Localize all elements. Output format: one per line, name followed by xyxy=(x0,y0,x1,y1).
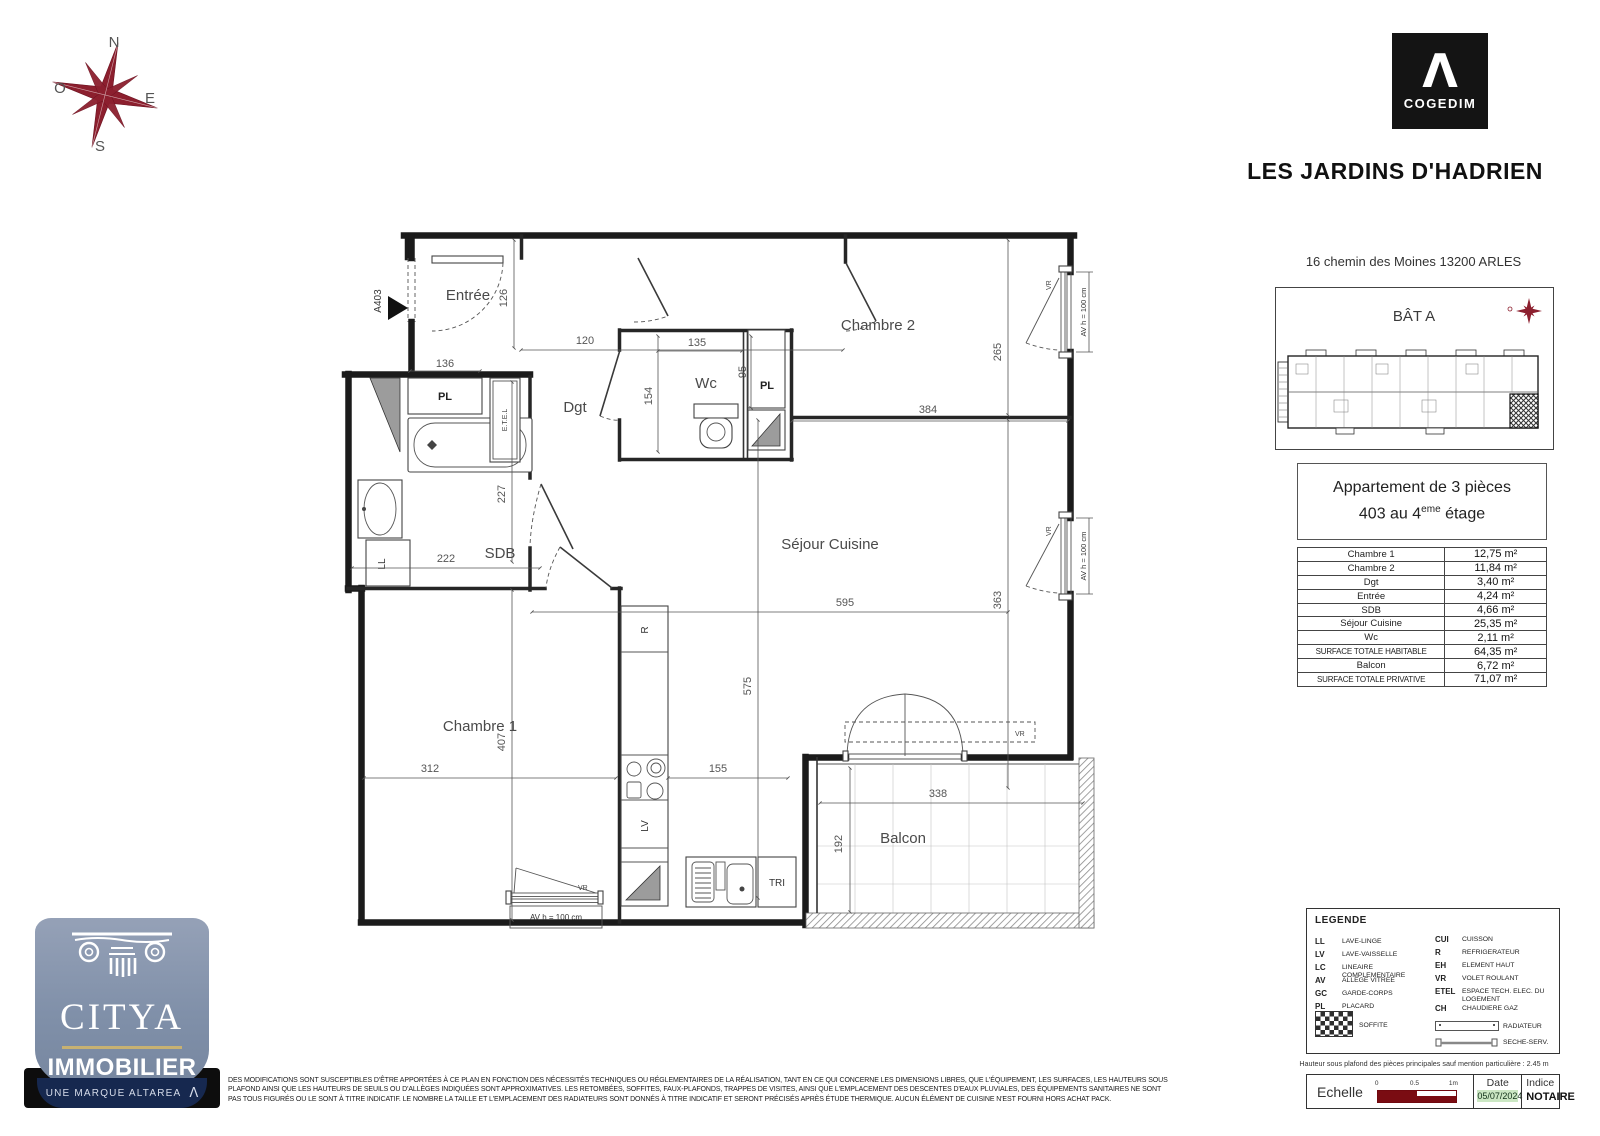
unit-ref-label: A403 xyxy=(373,289,384,313)
table-row: Entrée4,24 m² xyxy=(1298,590,1546,604)
closet-label: PL xyxy=(760,380,774,392)
table-row: Chambre 211,84 m² xyxy=(1298,562,1546,576)
window-height-note: AV h = 100 cm xyxy=(1079,288,1088,337)
compass-east-label: E xyxy=(145,90,155,107)
date-cell: Date 05/07/2024 xyxy=(1473,1075,1521,1108)
table-row: Séjour Cuisine25,35 m² xyxy=(1298,617,1546,631)
svg-text:575: 575 xyxy=(742,677,754,695)
legend-box: LEGENDE LLLAVE-LINGE LVLAVE-VAISSELLE LC… xyxy=(1306,908,1560,1054)
table-row-total-privative: SURFACE TOTALE PRIVATIVE71,07 m² xyxy=(1298,673,1546,687)
building-key-plan-drawing: BÂT A xyxy=(1276,288,1553,449)
column-capital-icon xyxy=(67,928,177,978)
apartment-floor: 403 au 4eme étage xyxy=(1359,499,1485,525)
vr-label: VR xyxy=(578,885,588,892)
svg-text:155: 155 xyxy=(709,763,727,775)
svg-text:338: 338 xyxy=(929,788,947,800)
room-label-wc: Wc xyxy=(695,375,717,392)
wc-door xyxy=(600,350,620,420)
svg-text:265: 265 xyxy=(992,343,1004,361)
room-label-balcon: Balcon xyxy=(880,830,926,847)
cogedim-lambda-icon: Λ xyxy=(1422,51,1458,92)
interior-walls xyxy=(348,236,1070,922)
table-row: Wc2,11 m² xyxy=(1298,631,1546,645)
building-label: BÂT A xyxy=(1393,308,1435,325)
ceiling-height-note: Hauteur sous plafond des pièces principa… xyxy=(1288,1059,1560,1068)
dishwasher-label: LV xyxy=(640,820,651,832)
balcony-guardrail xyxy=(806,913,1094,928)
compass-north-label: N xyxy=(109,34,120,51)
table-row: Dgt3,40 m² xyxy=(1298,576,1546,590)
washing-machine xyxy=(366,540,410,586)
towel-dryer-label: SECHE-SERV. xyxy=(1503,1038,1595,1047)
svg-text:154: 154 xyxy=(643,387,655,405)
soffite-symbol xyxy=(1315,1011,1353,1037)
cogedim-logo: Λ COGEDIM xyxy=(1392,33,1488,129)
room-label-dgt: Dgt xyxy=(563,399,587,416)
svg-text:95: 95 xyxy=(737,366,749,378)
room-label-entree: Entrée xyxy=(446,287,490,304)
table-row: Chambre 112,75 m² xyxy=(1298,548,1546,562)
svg-text:227: 227 xyxy=(496,485,508,503)
room-label-sdb: SDB xyxy=(485,545,516,562)
citya-shield: CITYA IMMOBILIER xyxy=(35,918,209,1092)
apartment-type: Appartement de 3 pièces xyxy=(1333,477,1511,499)
closet-wc xyxy=(748,330,785,408)
svg-text:595: 595 xyxy=(836,597,854,609)
balcony-guardrail xyxy=(1079,758,1094,928)
tri-label: TRI xyxy=(769,878,785,889)
sejour-window: VR AV h = 100 cm xyxy=(1026,512,1093,600)
citya-gold-rule xyxy=(62,1046,182,1049)
kitchen-fixtures: R LV TRI xyxy=(621,606,796,907)
table-row: Balcon6,72 m² xyxy=(1298,659,1546,673)
index-cell: Indice NOTAIRE xyxy=(1521,1075,1559,1108)
room-labels: Entrée Chambre 2 Wc Dgt SDB Séjour Cuisi… xyxy=(438,287,926,847)
building-key-plan: BÂT A xyxy=(1275,287,1554,450)
radiator-label: RADIATEUR xyxy=(1503,1022,1595,1031)
tap-icon xyxy=(740,887,745,892)
altarea-lambda-icon: Λ xyxy=(189,1086,198,1101)
highlighted-unit xyxy=(1510,394,1538,428)
compass-south-label: S xyxy=(95,138,105,155)
building-footprint xyxy=(1278,350,1538,434)
window-height-note: AV h = 100 cm xyxy=(530,913,582,922)
citya-name: CITYA xyxy=(35,996,209,1039)
svg-text:135: 135 xyxy=(688,337,706,349)
soffite-triangle xyxy=(370,378,400,452)
citya-tagline-band: UNE MARQUE ALTAREA Λ xyxy=(37,1078,207,1108)
date-value: 05/07/2024 xyxy=(1477,1090,1518,1102)
table-row-total-habitable: SURFACE TOTALE HABITABLE64,35 m² xyxy=(1298,645,1546,659)
floor-plan-drawing: VR VR AV h = 100 cm VR AV h = 100 cm xyxy=(340,225,1100,935)
floor-plan-sheet: N O E S Λ COGEDIM LES JARDINS D'HADRIEN … xyxy=(0,0,1600,1136)
svg-text:384: 384 xyxy=(919,404,937,416)
etel-label: E.T.E.L xyxy=(502,409,509,432)
towel-dryer-symbol xyxy=(1435,1037,1499,1047)
room-label-chambre2: Chambre 2 xyxy=(841,317,915,334)
radiator-symbol xyxy=(1435,1021,1499,1031)
svg-text:363: 363 xyxy=(992,591,1004,609)
citya-tagline: UNE MARQUE ALTAREA xyxy=(46,1088,182,1099)
surface-table: Chambre 112,75 m² Chambre 211,84 m² Dgt3… xyxy=(1297,547,1547,687)
sdb-door xyxy=(530,484,573,549)
dimension-lines: 126 120 136 135 154 95 265 384 227 222 5… xyxy=(352,240,1083,920)
svg-text:222: 222 xyxy=(437,553,455,565)
date-label: Date xyxy=(1474,1077,1521,1089)
project-address: 16 chemin des Moines 13200 ARLES xyxy=(1275,254,1552,269)
balcony xyxy=(806,757,1094,928)
svg-text:120: 120 xyxy=(576,335,594,347)
table-row: SDB4,66 m² xyxy=(1298,604,1546,618)
room-label-chambre1: Chambre 1 xyxy=(443,718,517,735)
cogedim-wordmark: COGEDIM xyxy=(1404,96,1477,111)
title-block: Echelle 0 0.5 1m Date 05/07/2024 Indice … xyxy=(1306,1074,1560,1109)
chambre1-window: VR AV h = 100 cm xyxy=(506,868,603,928)
balcony-french-door: VR xyxy=(843,694,1035,761)
room-label-sejour: Séjour Cuisine xyxy=(781,536,879,553)
window-height-note: AV h = 100 cm xyxy=(1079,532,1088,581)
chambre1-door xyxy=(546,547,612,588)
unit-entry-marker: A403 xyxy=(373,289,408,320)
svg-text:126: 126 xyxy=(498,289,510,307)
svg-text:136: 136 xyxy=(436,358,454,370)
index-label: Indice xyxy=(1526,1077,1559,1089)
svg-text:312: 312 xyxy=(421,763,439,775)
compass-west-label: O xyxy=(54,80,66,97)
exterior-walls xyxy=(345,236,1074,926)
citya-logo: CITYA IMMOBILIER UNE MARQUE ALTAREA Λ xyxy=(26,918,218,1110)
svg-text:192: 192 xyxy=(833,835,845,853)
toilet-tank xyxy=(694,404,738,418)
scale-bar: 0 0.5 1m xyxy=(1377,1079,1457,1105)
entry-arrow-icon xyxy=(388,296,408,320)
tap-icon xyxy=(362,507,366,511)
legend-title: LEGENDE xyxy=(1315,915,1367,926)
disclaimer-text: DES MODIFICATIONS SONT SUSCEPTIBLES D'ÊT… xyxy=(228,1076,1268,1104)
key-plan-compass-icon xyxy=(1508,298,1542,324)
index-value: NOTAIRE xyxy=(1526,1091,1559,1103)
chambre2-window: VR AV h = 100 cm xyxy=(1026,266,1093,358)
vr-label: VR xyxy=(1046,280,1053,290)
kitchen-sink-unit xyxy=(686,857,756,907)
svg-text:407: 407 xyxy=(496,733,508,751)
toilet-bowl xyxy=(700,418,732,448)
vr-label: VR xyxy=(1046,526,1053,536)
fridge-label: R xyxy=(640,626,651,633)
apartment-info-box: Appartement de 3 pièces 403 au 4eme étag… xyxy=(1297,463,1547,540)
page-title: LES JARDINS D'HADRIEN xyxy=(1225,158,1565,185)
compass-rose: N O E S xyxy=(38,28,172,162)
scale-label: Echelle xyxy=(1317,1084,1363,1100)
closet-label: PL xyxy=(438,391,452,403)
vr-label: VR xyxy=(1015,731,1025,738)
scale-cell: Echelle 0 0.5 1m xyxy=(1307,1075,1473,1108)
etel-closet: E.T.E.L xyxy=(490,378,520,462)
corridor-door xyxy=(634,258,668,322)
